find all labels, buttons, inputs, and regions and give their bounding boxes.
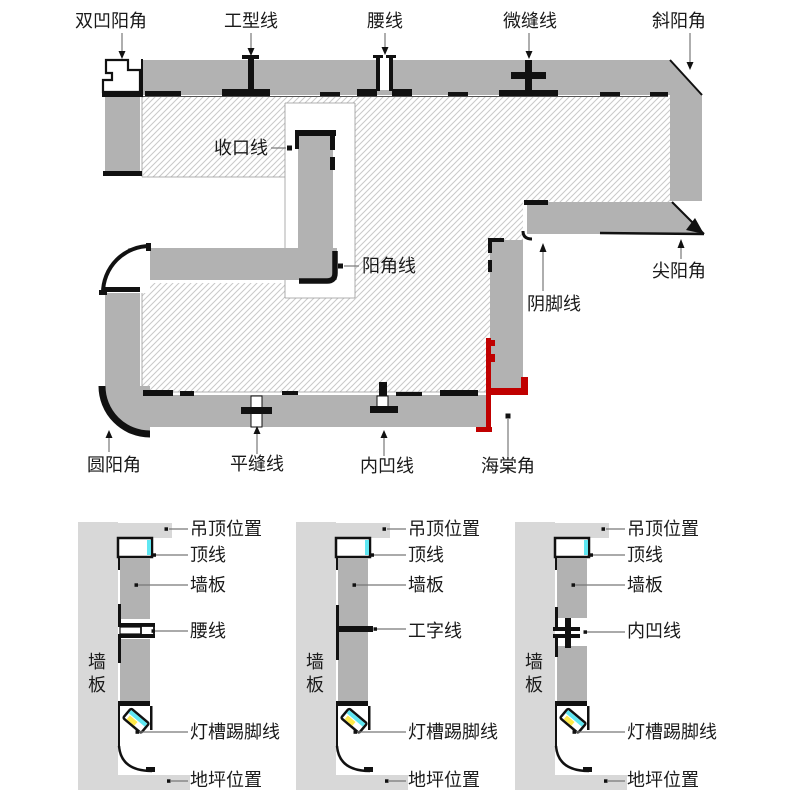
crown-led-strip	[147, 540, 151, 555]
label-crown-line: 顶线	[627, 545, 663, 565]
wall-panel-lower	[338, 632, 368, 701]
label-concave-line: 内凹线	[360, 456, 414, 476]
i-shaped-line-section-profile	[336, 626, 373, 632]
bottom-band	[128, 395, 488, 427]
wall-panel-lower	[557, 646, 587, 701]
label-ceiling-position: 吊顶位置	[408, 519, 480, 539]
section-detail-1: 吊顶位置 顶线 墙板 腰线 灯槽踢脚线 地坪位置 墙 板	[78, 519, 280, 790]
label-skirting: 灯槽踢脚线	[190, 722, 280, 742]
label-side-wall-1: 墙	[525, 652, 543, 672]
ceiling-strip	[336, 523, 390, 538]
right-wall-band	[670, 95, 702, 201]
label-round-corner: 圆阳角	[87, 455, 141, 475]
label-closing-line: 收口线	[214, 138, 268, 158]
plan-view-diagram: 双凹阳角 工型线 腰线 微缝线 斜阳角 收口线 阳角线 阴脚线 尖阳角 圆阳角 …	[0, 0, 800, 490]
label-middle-profile: 工字线	[408, 621, 462, 641]
label-ceiling-position: 吊顶位置	[627, 519, 699, 539]
crown-molding	[555, 538, 589, 557]
crown-molding	[118, 538, 152, 557]
label-side-wall-1: 墙	[88, 652, 106, 672]
wall-panel-upper	[557, 558, 587, 618]
label-floor-position: 地坪位置	[190, 770, 262, 790]
label-wall-panel: 墙板	[408, 575, 444, 595]
section-detail-3: 吊顶位置 顶线 墙板 内凹线 灯槽踢脚线 地坪位置 墙 板	[515, 519, 717, 790]
label-side-wall-1: 墙	[306, 652, 324, 672]
section-detail-2: 吊顶位置 顶线 墙板 工字线 灯槽踢脚线 地坪位置 墙 板	[296, 519, 498, 790]
wall-panel-lower	[120, 639, 150, 701]
label-side-wall-2: 板	[306, 675, 324, 695]
left-lower-band	[105, 292, 140, 388]
label-side-wall-2: 板	[88, 675, 106, 695]
left-upper-band	[105, 97, 140, 174]
light-trough-skirting	[555, 701, 592, 772]
inner-band	[298, 133, 333, 251]
label-crown-line: 顶线	[190, 545, 226, 565]
right-lower-band	[490, 240, 523, 392]
wall-panel-upper	[120, 558, 150, 619]
middle-band	[128, 248, 337, 280]
label-inner-foot-line: 阴脚线	[527, 294, 581, 314]
wall-panel-upper	[338, 558, 368, 626]
light-trough-skirting	[336, 701, 373, 772]
floor-strip	[113, 775, 190, 790]
label-side-wall-2: 板	[525, 675, 543, 695]
label-floor-position: 地坪位置	[627, 770, 699, 790]
label-double-concave-corner: 双凹阳角	[75, 11, 147, 31]
label-micro-seam-line: 微缝线	[503, 11, 557, 31]
floor-strip	[331, 775, 408, 790]
label-ceiling-position: 吊顶位置	[190, 519, 262, 539]
trim-profile-diagram: 双凹阳角 工型线 腰线 微缝线 斜阳角 收口线 阳角线 阴脚线 尖阳角 圆阳角 …	[0, 0, 800, 800]
label-wall-panel: 墙板	[627, 575, 663, 595]
label-begonia-corner: 海棠角	[481, 456, 535, 476]
label-middle-profile: 内凹线	[627, 621, 681, 641]
label-skirting: 灯槽踢脚线	[408, 722, 498, 742]
floor-strip	[550, 775, 627, 790]
section-details: 吊顶位置 顶线 墙板 腰线 灯槽踢脚线 地坪位置 墙 板	[0, 490, 800, 800]
double-concave-corner-profile	[103, 60, 140, 92]
label-crown-line: 顶线	[408, 545, 444, 565]
label-sharp-corner: 尖阳角	[652, 261, 706, 281]
label-skirting: 灯槽踢脚线	[627, 722, 717, 742]
ceiling-strip	[118, 523, 172, 538]
label-outer-corner-line: 阳角线	[362, 256, 416, 276]
crown-led-strip	[584, 540, 588, 555]
label-wall-panel: 墙板	[190, 575, 226, 595]
ceiling-strip	[555, 523, 609, 538]
label-flat-seam-line: 平缝线	[230, 454, 284, 474]
waist-line-section-profile	[118, 623, 155, 638]
label-middle-profile: 腰线	[190, 621, 226, 641]
label-bevel-corner: 斜阳角	[652, 11, 706, 31]
label-i-type-line: 工型线	[224, 11, 278, 31]
light-trough-skirting	[118, 701, 155, 772]
crown-molding	[336, 538, 370, 557]
label-floor-position: 地坪位置	[408, 770, 480, 790]
crown-led-strip	[365, 540, 369, 555]
label-waist-line: 腰线	[367, 11, 403, 31]
